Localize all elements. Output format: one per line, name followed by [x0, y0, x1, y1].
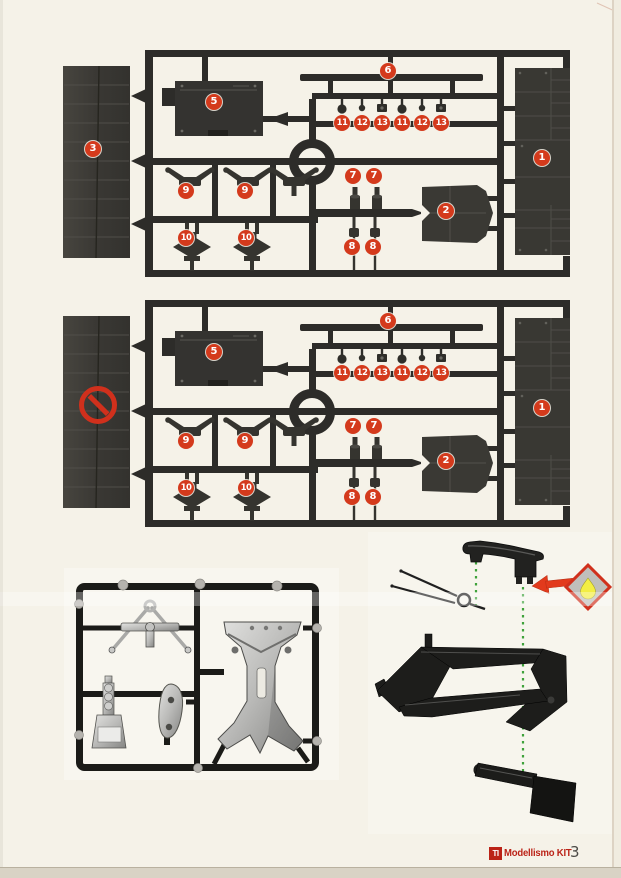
brand-logo: TI Modellismo KIT	[489, 847, 575, 860]
instruction-sheet-page: 356111213111213199772101088 561112131112…	[0, 0, 621, 878]
brand-logo-mark-text: TI	[492, 849, 498, 858]
page-artwork	[0, 0, 621, 878]
brand-logo-mark: TI	[489, 847, 502, 860]
sprue-a-graphic	[63, 50, 570, 277]
paper-crease	[0, 592, 621, 606]
brand-logo-text: Modellismo KIT	[504, 848, 572, 859]
page-number: 3	[570, 843, 580, 861]
page-bottom-edge	[0, 867, 621, 878]
prohibition-slash	[87, 394, 109, 416]
sprue-b-graphic	[63, 300, 570, 527]
page-right-margin	[614, 0, 621, 878]
page-left-edge	[0, 0, 3, 878]
prohibition-icon	[79, 386, 117, 424]
